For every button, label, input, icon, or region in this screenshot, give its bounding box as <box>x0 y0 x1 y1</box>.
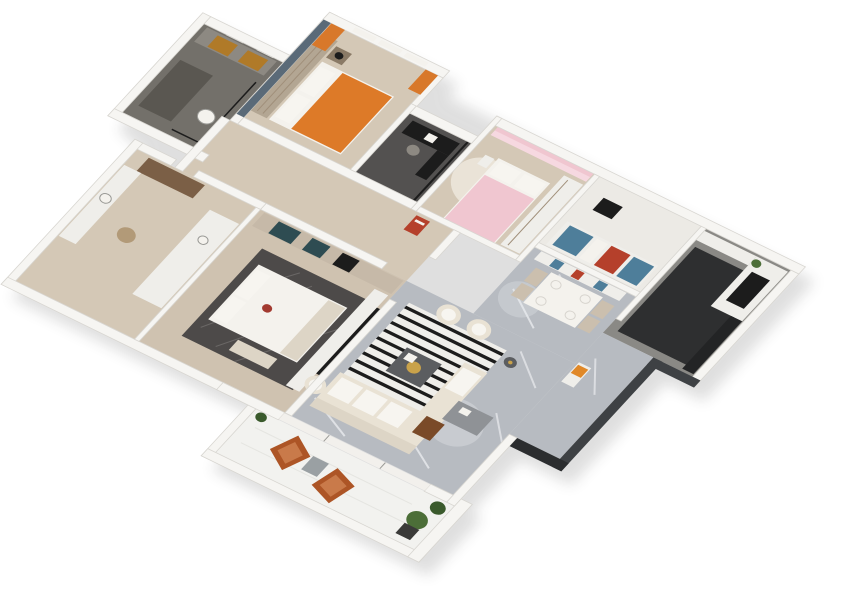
floor-plan-figure <box>0 0 844 607</box>
marble-vein <box>595 359 596 395</box>
floor-plan-svg <box>0 0 844 607</box>
